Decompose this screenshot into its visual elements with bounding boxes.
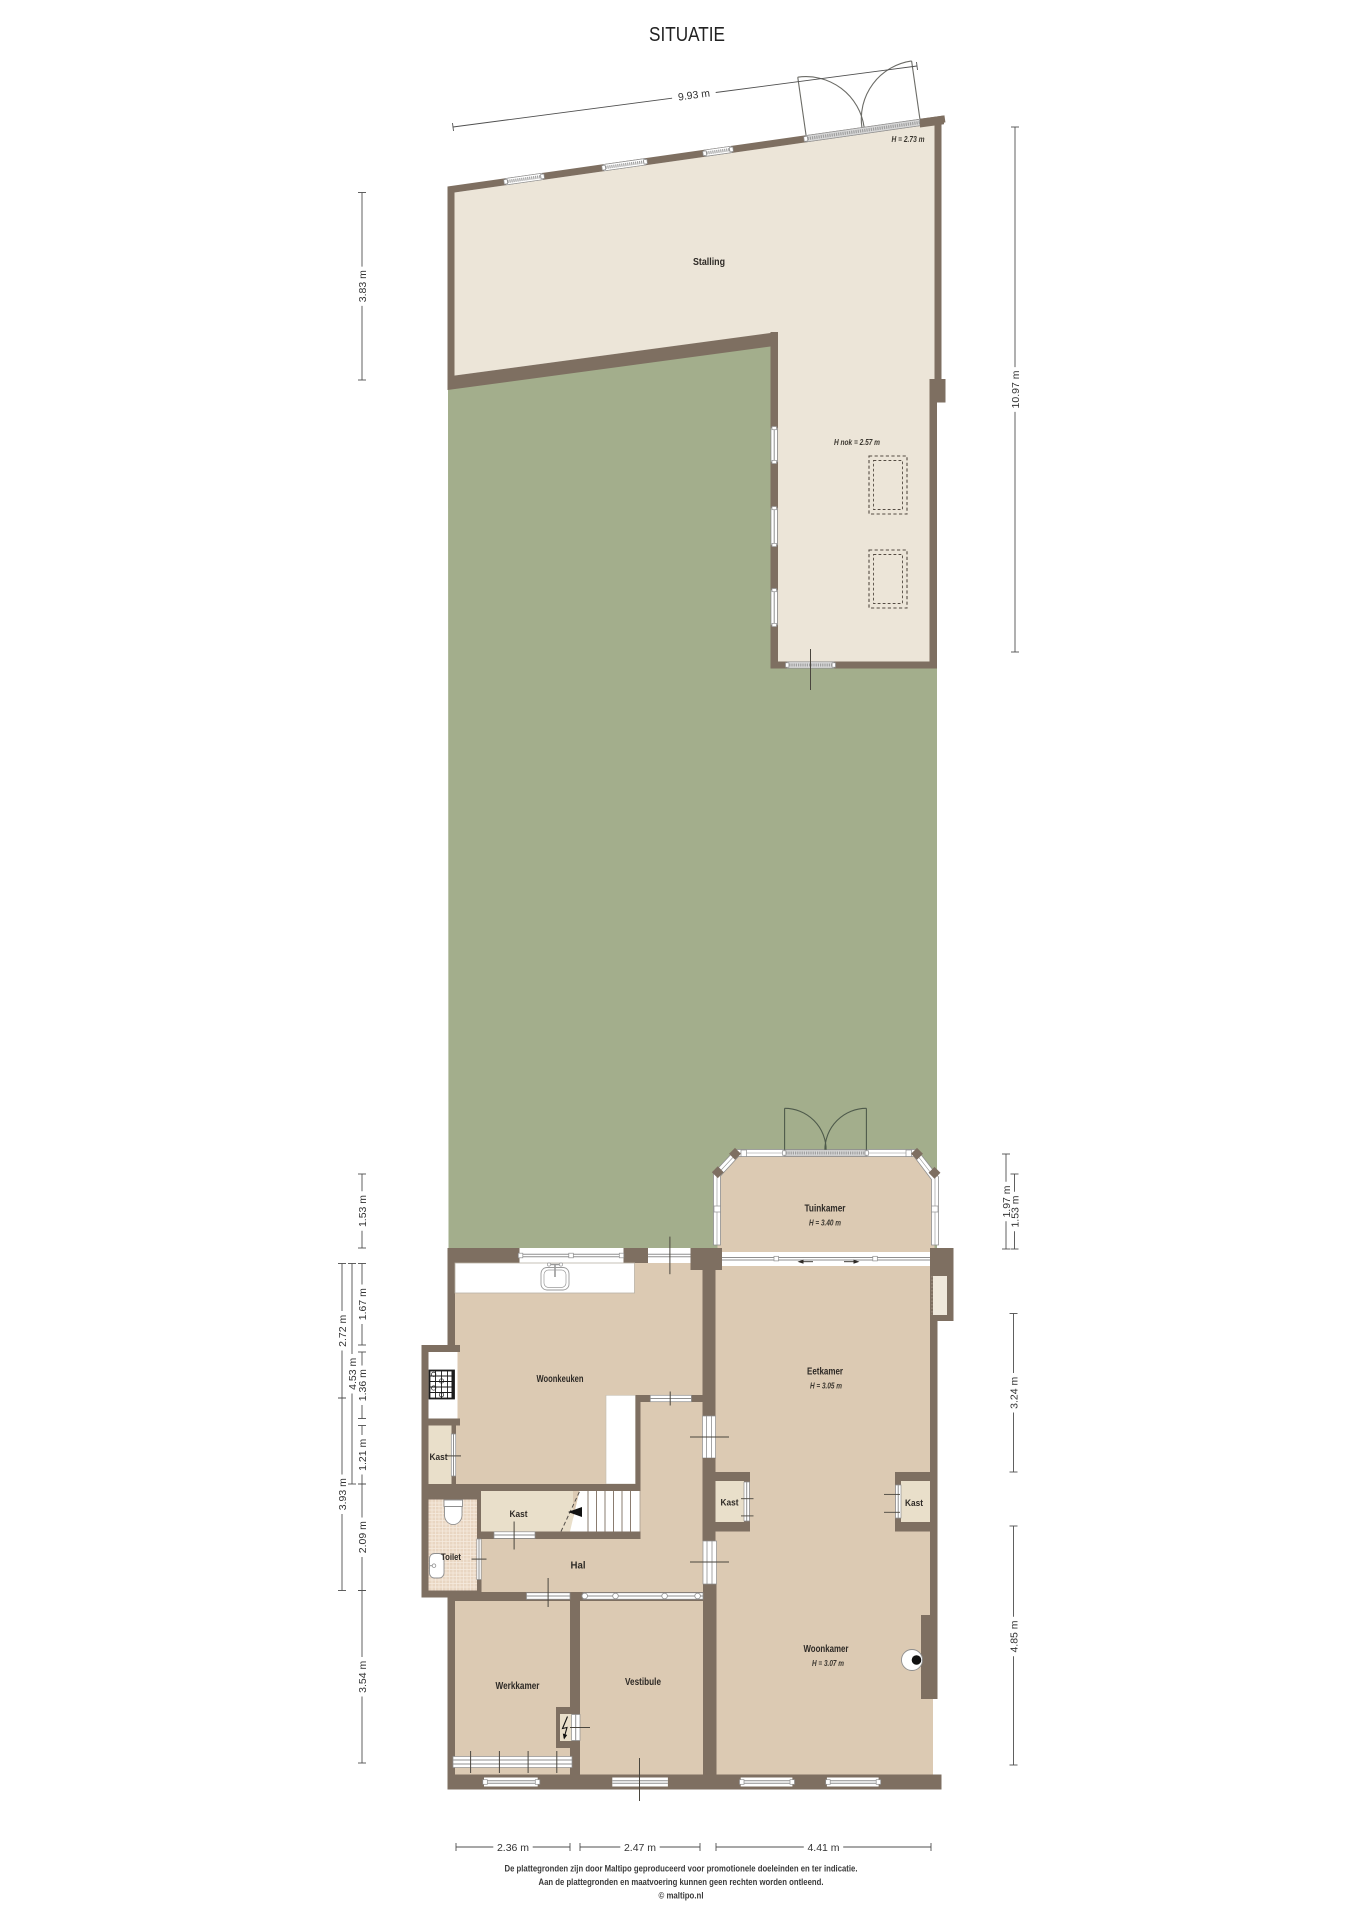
- svg-text:4.85 m: 4.85 m: [1009, 1620, 1021, 1652]
- svg-text:Eetkamer: Eetkamer: [807, 1367, 843, 1378]
- svg-text:SITUATIE: SITUATIE: [649, 24, 725, 46]
- svg-text:© maltipo.nl: © maltipo.nl: [659, 1891, 704, 1902]
- svg-text:3.54 m: 3.54 m: [357, 1661, 369, 1693]
- svg-text:2.72 m: 2.72 m: [337, 1315, 349, 1347]
- svg-text:Aan de plattegronden en maatvo: Aan de plattegronden en maatvoering kunn…: [539, 1877, 824, 1888]
- svg-text:1.21 m: 1.21 m: [357, 1439, 369, 1471]
- svg-text:H = 3.40 m: H = 3.40 m: [809, 1219, 841, 1228]
- svg-text:H = 3.05 m: H = 3.05 m: [810, 1382, 842, 1391]
- svg-text:1.36 m: 1.36 m: [357, 1369, 369, 1401]
- svg-text:H = 3.07 m: H = 3.07 m: [812, 1659, 844, 1668]
- svg-text:Werkkamer: Werkkamer: [496, 1681, 540, 1692]
- svg-text:Woonkamer: Woonkamer: [804, 1644, 849, 1655]
- svg-text:De plattegronden zijn door Mal: De plattegronden zijn door Maltipo gepro…: [505, 1864, 858, 1875]
- svg-text:2.09 m: 2.09 m: [357, 1521, 369, 1553]
- svg-text:Stalling: Stalling: [693, 257, 725, 268]
- svg-text:1.67 m: 1.67 m: [357, 1288, 369, 1320]
- svg-text:3.93 m: 3.93 m: [337, 1478, 349, 1510]
- svg-text:Vestibule: Vestibule: [625, 1677, 661, 1688]
- svg-text:1.53 m: 1.53 m: [1010, 1195, 1022, 1227]
- svg-text:Kast: Kast: [721, 1498, 740, 1509]
- svg-text:3.24 m: 3.24 m: [1009, 1377, 1021, 1409]
- svg-text:H nok = 2.57 m: H nok = 2.57 m: [834, 438, 880, 447]
- svg-text:Kast: Kast: [510, 1509, 529, 1520]
- svg-text:Toilet: Toilet: [441, 1552, 462, 1563]
- svg-text:2.47 m: 2.47 m: [624, 1842, 656, 1854]
- svg-text:Hal: Hal: [571, 1561, 586, 1572]
- svg-text:4.41 m: 4.41 m: [807, 1842, 839, 1854]
- svg-text:Kast: Kast: [430, 1452, 449, 1463]
- svg-text:2.36 m: 2.36 m: [497, 1842, 529, 1854]
- svg-text:1.53 m: 1.53 m: [357, 1195, 369, 1227]
- svg-text:10.97 m: 10.97 m: [1010, 370, 1022, 408]
- svg-text:Kast: Kast: [905, 1498, 924, 1509]
- svg-text:Tuinkamer: Tuinkamer: [805, 1204, 846, 1215]
- svg-text:3.83 m: 3.83 m: [357, 270, 369, 302]
- svg-text:Woonkeuken: Woonkeuken: [537, 1374, 584, 1385]
- svg-text:H = 2.73 m: H = 2.73 m: [892, 135, 925, 144]
